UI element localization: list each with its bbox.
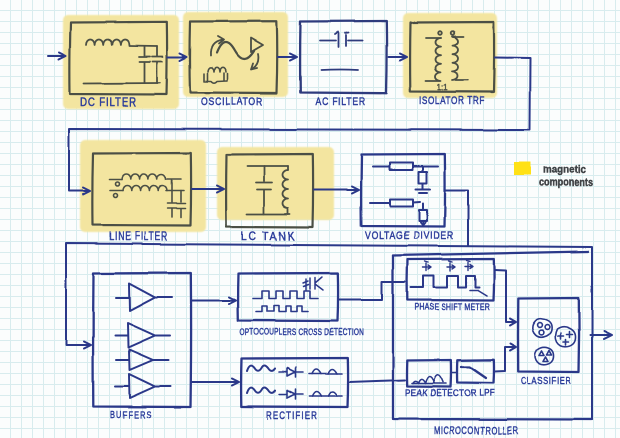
- svg-text:CLASSIFIER: CLASSIFIER: [521, 375, 571, 387]
- svg-text:PHASE SHIFT METER: PHASE SHIFT METER: [414, 302, 490, 313]
- svg-text:OSCILLATOR: OSCILLATOR: [201, 96, 263, 108]
- svg-text:RECTIFIER: RECTIFIER: [266, 410, 318, 422]
- svg-text:components: components: [539, 177, 593, 189]
- svg-text:LINE FILTER: LINE FILTER: [109, 231, 168, 243]
- svg-text:AC FILTER: AC FILTER: [315, 96, 366, 108]
- svg-text:MICROCONTROLLER: MICROCONTROLLER: [434, 425, 519, 437]
- svg-text:OPTOCOUPLERS CROSS DETECTION: OPTOCOUPLERS CROSS DETECTION: [240, 327, 364, 337]
- svg-text:DC FILTER: DC FILTER: [80, 97, 137, 109]
- svg-text:BUFFERS: BUFFERS: [110, 409, 152, 421]
- svg-text:1:1: 1:1: [437, 83, 449, 92]
- svg-text:VOLTAGE DIVIDER: VOLTAGE DIVIDER: [365, 230, 454, 242]
- svg-text:LC TANK: LC TANK: [241, 231, 296, 243]
- svg-text:magnetic: magnetic: [543, 164, 586, 176]
- svg-text:PEAK DETECTOR LPF: PEAK DETECTOR LPF: [405, 388, 495, 399]
- svg-text:ISOLATOR TRF: ISOLATOR TRF: [419, 95, 485, 107]
